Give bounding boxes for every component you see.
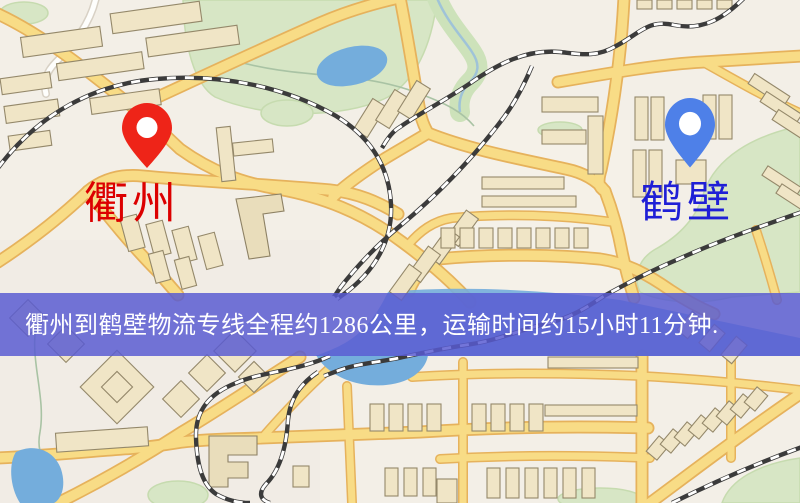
route-banner: 衢州到鹤壁物流专线全程约1286公里，运输时间约15小时11分钟.	[0, 293, 800, 356]
route-banner-text: 衢州到鹤壁物流专线全程约1286公里，运输时间约15小时11分钟.	[25, 312, 719, 339]
map-image: 衢州到鹤壁物流专线全程约1286公里，运输时间约15小时11分钟. 衢州 鹤壁	[0, 0, 800, 503]
logistics-route-map: 衢州到鹤壁物流专线全程约1286公里，运输时间约15小时11分钟. 衢州 鹤壁	[0, 0, 800, 503]
destination-label: 鹤壁	[640, 180, 734, 227]
origin-label: 衢州	[84, 179, 180, 228]
